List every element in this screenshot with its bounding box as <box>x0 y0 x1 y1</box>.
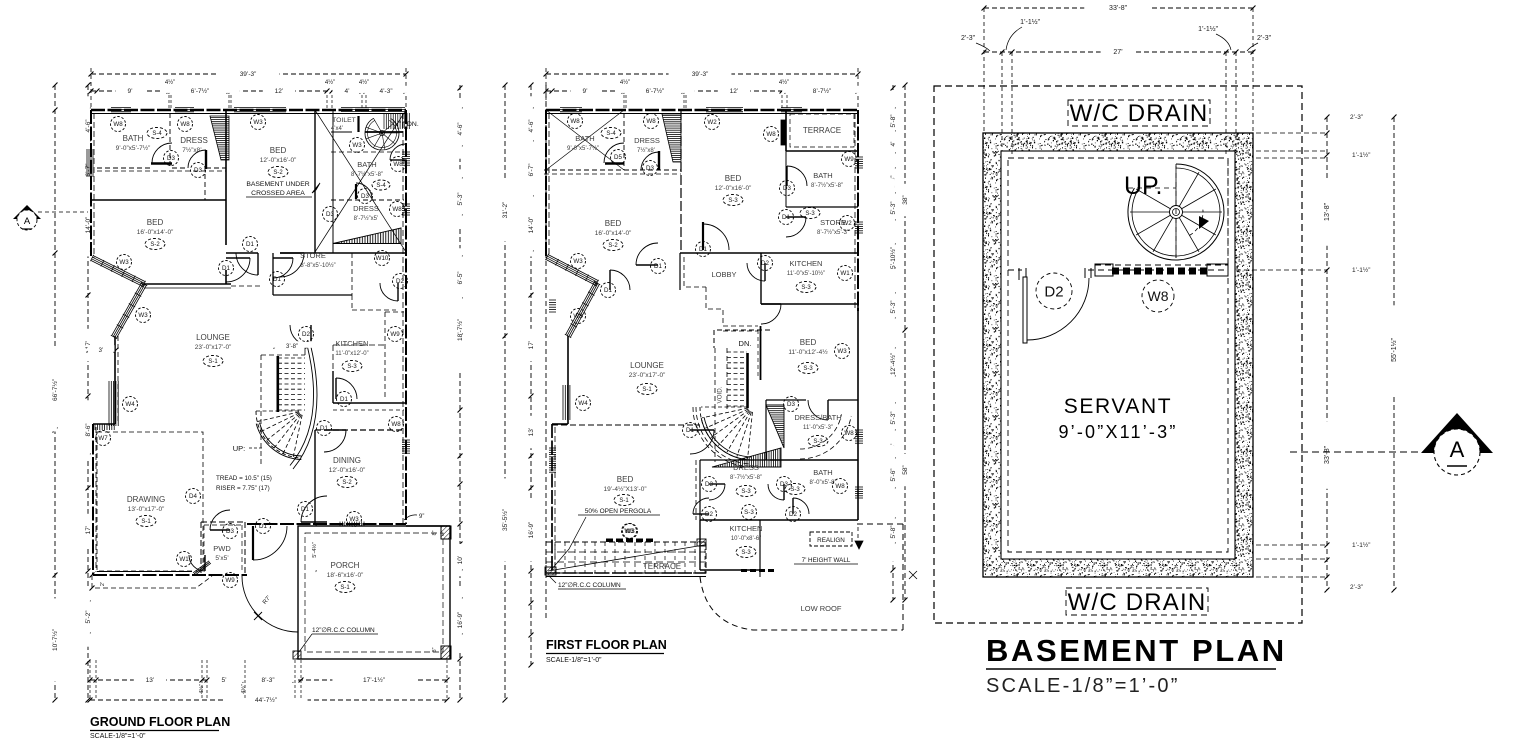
svg-text:10’-7½”: 10’-7½” <box>51 629 59 651</box>
svg-text:D3: D3 <box>167 155 175 162</box>
svg-text:DINING: DINING <box>333 456 361 465</box>
svg-text:D3: D3 <box>783 185 791 192</box>
svg-text:S-2: S-2 <box>273 170 283 176</box>
svg-text:55’-1½”: 55’-1½” <box>1390 337 1398 361</box>
svg-text:35’-5½”: 35’-5½” <box>501 509 509 531</box>
svg-text:W8: W8 <box>844 430 854 437</box>
svg-text:8’-0”x5’-8”: 8’-0”x5’-8” <box>809 480 836 486</box>
svg-text:1’-1½”: 1’-1½” <box>1352 541 1370 549</box>
svg-text:13’-0”x17’-0”: 13’-0”x17’-0” <box>128 506 165 513</box>
svg-text:5’-4½”: 5’-4½” <box>311 542 318 558</box>
svg-text:D2: D2 <box>396 278 404 285</box>
svg-text:LOBBY: LOBBY <box>711 270 736 279</box>
svg-text:11’-0”x5’-3”: 11’-0”x5’-3” <box>803 425 833 431</box>
svg-text:8’-7½”x5’-8”: 8’-7½”x5’-8” <box>351 171 383 178</box>
svg-text:S-4: S-4 <box>606 131 616 137</box>
svg-text:S-1: S-1 <box>340 585 350 591</box>
svg-text:W3: W3 <box>253 119 263 126</box>
svg-text:W3: W3 <box>624 528 634 535</box>
svg-text:W4: W4 <box>125 401 135 408</box>
svg-text:BED: BED <box>800 338 817 347</box>
svg-text:D1: D1 <box>222 265 230 272</box>
svg-text:38”: 38” <box>902 195 909 204</box>
svg-text:11’-0”x12’-0”: 11’-0”x12’-0” <box>335 351 368 357</box>
svg-text:BED: BED <box>147 218 164 227</box>
svg-text:14’-0”: 14’-0” <box>528 217 535 234</box>
svg-text:66’-7½”: 66’-7½” <box>51 379 59 401</box>
svg-text:12”∅R.C.C COLUMN: 12”∅R.C.C COLUMN <box>312 627 375 634</box>
svg-text:7’ HEIGHT WALL: 7’ HEIGHT WALL <box>802 557 851 564</box>
svg-text:BED: BED <box>270 146 287 155</box>
svg-text:PORCH: PORCH <box>331 561 360 570</box>
svg-text:9’: 9’ <box>127 88 133 95</box>
svg-text:S-1: S-1 <box>642 387 652 393</box>
svg-text:13’: 13’ <box>528 427 535 436</box>
svg-text:W3: W3 <box>573 258 583 265</box>
svg-text:S-3: S-3 <box>805 211 815 217</box>
svg-text:DRESS: DRESS <box>733 463 759 472</box>
svg-text:5’-8”: 5’-8” <box>890 114 897 127</box>
svg-text:4½”: 4½” <box>240 684 247 694</box>
svg-text:SERVANT: SERVANT <box>1064 395 1172 418</box>
svg-text:39’-3”: 39’-3” <box>692 71 709 78</box>
svg-text:12”∅R.C.C COLUMN: 12”∅R.C.C COLUMN <box>558 582 621 589</box>
svg-text:5’-8”: 5’-8” <box>890 525 897 538</box>
svg-text:23’-0”x17’-0”: 23’-0”x17’-0” <box>195 344 232 351</box>
svg-text:DRESS/BATH: DRESS/BATH <box>794 413 841 422</box>
svg-text:D1: D1 <box>273 276 281 283</box>
svg-text:UP:: UP: <box>233 444 246 453</box>
svg-text:S-3: S-3 <box>813 439 823 445</box>
svg-text:D1: D1 <box>340 396 348 403</box>
svg-text:9’-0”x5’-7½”: 9’-0”x5’-7½” <box>567 145 599 152</box>
svg-text:TOILET: TOILET <box>332 117 356 124</box>
svg-text:16’-9”: 16’-9” <box>457 612 464 629</box>
svg-text:W8: W8 <box>835 483 845 490</box>
svg-text:7½”x8’: 7½”x8’ <box>182 146 202 154</box>
svg-text:31’-2”: 31’-2” <box>502 202 509 219</box>
svg-text:10’-0”x8’-6”: 10’-0”x8’-6” <box>731 536 761 542</box>
svg-text:4’-6”: 4’-6” <box>528 119 535 132</box>
svg-text:2’-3”: 2’-3” <box>1257 35 1272 42</box>
svg-text:8’-8”x5’-10½”: 8’-8”x5’-10½” <box>300 262 335 269</box>
svg-text:W3: W3 <box>349 516 359 523</box>
svg-text:BATH: BATH <box>813 171 832 180</box>
svg-text:1’-1½”: 1’-1½” <box>1198 25 1219 33</box>
svg-text:8’-7½”: 8’-7½” <box>813 87 831 95</box>
svg-text:W10: W10 <box>376 255 389 262</box>
svg-text:S-3: S-3 <box>803 366 813 372</box>
svg-text:4’-3”: 4’-3” <box>379 88 392 95</box>
svg-text:17’: 17’ <box>85 525 92 534</box>
svg-text:LOUNGE: LOUNGE <box>630 361 664 370</box>
svg-text:W3: W3 <box>573 313 583 320</box>
svg-text:W8: W8 <box>766 131 776 138</box>
svg-text:REALIGN: REALIGN <box>817 537 845 544</box>
svg-text:18’-7½”: 18’-7½” <box>456 319 464 341</box>
svg-text:DRESS: DRESS <box>180 136 208 145</box>
svg-text:S-3: S-3 <box>741 489 751 495</box>
svg-text:W/C DRAIN: W/C DRAIN <box>1068 589 1207 616</box>
svg-text:BATH: BATH <box>123 134 144 143</box>
svg-text:S-3: S-3 <box>744 509 754 516</box>
svg-text:STORE: STORE <box>300 251 326 260</box>
svg-text:DRAWING: DRAWING <box>127 495 165 504</box>
svg-text:W3: W3 <box>138 312 148 319</box>
svg-text:S-2: S-2 <box>150 242 160 248</box>
svg-text:D2: D2 <box>1044 283 1063 300</box>
svg-text:W9: W9 <box>844 156 854 163</box>
svg-text:W8: W8 <box>393 161 403 168</box>
svg-text:W2: W2 <box>707 119 717 126</box>
svg-text:TERRACE: TERRACE <box>803 126 841 135</box>
svg-text:12’-4½”: 12’-4½” <box>889 353 897 375</box>
svg-text:33’-8”: 33’-8” <box>1109 5 1128 12</box>
svg-text:D5: D5 <box>614 154 622 161</box>
svg-text:6’-7½”: 6’-7½” <box>646 87 664 95</box>
svg-text:BATH: BATH <box>813 468 832 477</box>
svg-text:6’-5”: 6’-5” <box>457 271 464 284</box>
svg-text:12’-0”x16’-0”: 12’-0”x16’-0” <box>715 185 752 192</box>
svg-text:DN.: DN. <box>739 339 752 348</box>
svg-text:D3: D3 <box>226 528 234 535</box>
svg-text:2’-3”: 2’-3” <box>1350 584 1363 591</box>
svg-text:5’-2”: 5’-2” <box>85 610 92 623</box>
svg-text:RISER = 7.75” (17): RISER = 7.75” (17) <box>216 485 270 492</box>
svg-text:39’-3”: 39’-3” <box>240 71 257 78</box>
svg-text:D1: D1 <box>686 427 694 434</box>
svg-text:S-3: S-3 <box>801 285 811 291</box>
svg-text:1’-1½”: 1’-1½” <box>1352 151 1370 159</box>
svg-text:5’-3”: 5’-3” <box>890 300 897 313</box>
svg-text:W9: W9 <box>390 331 400 338</box>
svg-text:S-4: S-4 <box>152 131 162 137</box>
svg-text:S-3: S-3 <box>728 198 738 204</box>
svg-text:2’-3”: 2’-3” <box>961 35 976 42</box>
svg-text:BED: BED <box>725 174 742 183</box>
svg-text:9’: 9’ <box>582 88 588 95</box>
svg-text:LOUNGE: LOUNGE <box>196 333 230 342</box>
svg-text:4½”: 4½” <box>198 684 205 694</box>
svg-text:11’-0”x12’-4½: 11’-0”x12’-4½ <box>788 348 828 356</box>
svg-text:W/C DRAIN: W/C DRAIN <box>1070 100 1209 127</box>
svg-text:W4: W4 <box>578 400 588 407</box>
svg-text:R7’: R7’ <box>262 595 272 606</box>
svg-text:TREAD = 10.5” (15): TREAD = 10.5” (15) <box>216 475 272 482</box>
svg-text:SCALE-1/8”=1’-0”: SCALE-1/8”=1’-0” <box>546 657 602 664</box>
svg-text:A: A <box>1450 437 1465 462</box>
svg-text:S-2: S-2 <box>608 243 618 249</box>
svg-text:58”: 58” <box>902 465 909 474</box>
svg-text:D2: D2 <box>789 511 797 518</box>
svg-text:2’-3”: 2’-3” <box>1350 114 1363 121</box>
svg-text:D2: D2 <box>761 260 769 267</box>
svg-text:W3: W3 <box>837 348 847 355</box>
svg-text:D1: D1 <box>246 241 254 248</box>
svg-text:4½”: 4½” <box>325 79 335 86</box>
svg-text:8’-7½”x5’: 8’-7½”x5’ <box>354 215 379 222</box>
svg-text:VOID.: VOID. <box>717 386 724 403</box>
svg-text:W8: W8 <box>570 118 580 125</box>
svg-text:KITCHEN: KITCHEN <box>790 259 823 268</box>
svg-text:W8: W8 <box>392 206 402 213</box>
svg-text:17’-1½”: 17’-1½” <box>363 676 385 684</box>
svg-text:D1: D1 <box>259 523 267 530</box>
svg-text:18’-6”x16’-0”: 18’-6”x16’-0” <box>327 572 364 579</box>
svg-text:BATH: BATH <box>357 160 376 169</box>
svg-text:GROUND FLOOR PLAN: GROUND FLOOR PLAN <box>90 715 230 729</box>
svg-text:8”: 8” <box>432 647 438 652</box>
svg-text:11’-0”x5’-10½”: 11’-0”x5’-10½” <box>787 270 825 277</box>
svg-text:10’: 10’ <box>457 555 464 564</box>
svg-text:5’-3”: 5’-3” <box>890 411 897 424</box>
svg-text:5’x5’: 5’x5’ <box>215 555 229 562</box>
svg-text:D1: D1 <box>604 287 612 294</box>
svg-text:19’-4½”X13’-0”: 19’-4½”X13’-0” <box>604 485 647 493</box>
svg-text:44’-7½”: 44’-7½” <box>255 696 277 704</box>
svg-text:8’-3”: 8’-3” <box>261 677 274 684</box>
svg-text:W8: W8 <box>646 118 656 125</box>
svg-text:1’-1½”: 1’-1½” <box>1020 18 1041 26</box>
svg-text:BASEMENT PLAN: BASEMENT PLAN <box>986 633 1287 668</box>
svg-text:12’-0”x16’-0”: 12’-0”x16’-0” <box>329 467 366 474</box>
svg-text:D1: D1 <box>782 214 790 221</box>
svg-text:W1: W1 <box>179 556 189 563</box>
svg-text:D3: D3 <box>361 193 369 200</box>
svg-text:A: A <box>24 216 31 227</box>
svg-text:D3: D3 <box>705 481 713 488</box>
svg-text:KITCHEN: KITCHEN <box>730 524 763 533</box>
svg-text:S-2: S-2 <box>342 480 352 486</box>
svg-text:DRESS: DRESS <box>634 136 660 145</box>
svg-text:DRESS: DRESS <box>353 204 379 213</box>
svg-text:W9: W9 <box>225 577 235 584</box>
svg-text:8’-7½”x5’-8”: 8’-7½”x5’-8” <box>730 474 762 481</box>
svg-text:D1: D1 <box>301 506 309 513</box>
svg-text:5’-3”: 5’-3” <box>890 201 897 214</box>
svg-text:KITCHEN: KITCHEN <box>336 339 369 348</box>
svg-text:D3: D3 <box>780 481 788 488</box>
svg-text:W1: W1 <box>840 270 850 277</box>
svg-text:D3: D3 <box>194 167 202 174</box>
svg-text:W7: W7 <box>98 435 108 442</box>
svg-text:3’-8”: 3’-8” <box>286 344 298 350</box>
svg-text:4½”: 4½” <box>620 79 630 86</box>
svg-text:BED: BED <box>617 475 634 484</box>
svg-text:W8: W8 <box>113 121 123 128</box>
svg-text:4½”: 4½” <box>165 79 175 86</box>
svg-text:8’-6”: 8’-6” <box>85 423 92 436</box>
svg-text:DN.: DN. <box>407 121 419 128</box>
svg-text:W3: W3 <box>352 142 362 149</box>
svg-text:5’: 5’ <box>221 677 227 684</box>
svg-text:2’: 2’ <box>100 582 106 586</box>
svg-text:17’: 17’ <box>528 340 535 349</box>
svg-text:6’-7½”: 6’-7½” <box>191 87 209 95</box>
svg-text:5’-3”: 5’-3” <box>457 192 464 205</box>
svg-text:UP.: UP. <box>1124 172 1162 200</box>
svg-text:4½”: 4½” <box>779 79 789 86</box>
svg-text:12’: 12’ <box>275 88 284 95</box>
svg-text:27’: 27’ <box>1113 49 1123 56</box>
svg-text:BED: BED <box>605 219 622 228</box>
svg-text:D2: D2 <box>705 511 713 518</box>
svg-text:LOW ROOF: LOW ROOF <box>801 604 842 613</box>
svg-text:9’-0”x5’-7½”: 9’-0”x5’-7½” <box>116 144 151 152</box>
svg-text:W3: W3 <box>119 259 129 266</box>
svg-text:SCALE-1/8”=1’-0”: SCALE-1/8”=1’-0” <box>90 733 146 740</box>
svg-text:6’-7”: 6’-7” <box>528 163 535 176</box>
svg-text:D1: D1 <box>699 246 707 253</box>
svg-text:9’-0”X11’-3”: 9’-0”X11’-3” <box>1058 422 1177 442</box>
svg-text:1’-1½”: 1’-1½” <box>1352 266 1370 274</box>
svg-text:TERRACE: TERRACE <box>643 562 681 571</box>
svg-text:D2: D2 <box>302 331 310 338</box>
svg-text:D4: D4 <box>189 493 197 500</box>
svg-text:8”: 8” <box>432 530 438 535</box>
svg-text:16’-9”: 16’-9” <box>528 522 535 539</box>
svg-text:W8: W8 <box>1148 288 1169 304</box>
svg-text:D3: D3 <box>646 165 654 172</box>
svg-text:BASEMENT UNDER: BASEMENT UNDER <box>246 181 309 188</box>
svg-text:4’x4’: 4’x4’ <box>331 126 343 132</box>
svg-text:S-3: S-3 <box>741 550 751 556</box>
svg-text:3’: 3’ <box>99 348 104 354</box>
svg-text:D3: D3 <box>787 401 795 408</box>
svg-text:BATH: BATH <box>575 134 594 143</box>
svg-text:12’-0”x16’-0”: 12’-0”x16’-0” <box>260 157 297 164</box>
svg-text:FIRST FLOOR PLAN: FIRST FLOOR PLAN <box>546 638 667 652</box>
svg-text:SCALE-1/8”=1’-0”: SCALE-1/8”=1’-0” <box>986 675 1180 697</box>
svg-text:7½”x8’: 7½”x8’ <box>637 147 655 154</box>
svg-text:33’-8”: 33’-8” <box>1324 445 1331 464</box>
svg-text:16’-0”x14’-0”: 16’-0”x14’-0” <box>137 229 174 236</box>
svg-text:S-4: S-4 <box>376 183 386 189</box>
svg-text:5’-6”: 5’-6” <box>890 468 897 481</box>
svg-text:S-1: S-1 <box>141 519 151 525</box>
svg-text:D1: D1 <box>320 425 328 432</box>
svg-text:D1: D1 <box>654 263 662 270</box>
svg-text:CROSSED AREA: CROSSED AREA <box>251 190 305 197</box>
svg-text:4’: 4’ <box>890 141 897 147</box>
svg-text:23’-0”x17’-0”: 23’-0”x17’-0” <box>629 372 666 379</box>
svg-text:13’-8”: 13’-8” <box>1324 202 1331 221</box>
svg-text:9”: 9” <box>419 514 424 520</box>
svg-text:4’-6”: 4’-6” <box>457 122 464 135</box>
svg-text:4½”: 4½” <box>359 79 369 86</box>
svg-text:S-3: S-3 <box>790 487 800 493</box>
svg-text:50% OPEN PERGOLA: 50% OPEN PERGOLA <box>585 508 652 515</box>
svg-text:16’-0”x14’-0”: 16’-0”x14’-0” <box>595 230 632 237</box>
svg-text:8’-7½”x5’-8”: 8’-7½”x5’-8” <box>811 182 843 189</box>
svg-text:D3: D3 <box>326 211 334 218</box>
svg-text:W2: W2 <box>842 220 852 227</box>
svg-text:W8: W8 <box>391 421 401 428</box>
svg-text:13’: 13’ <box>146 677 155 684</box>
svg-text:W8: W8 <box>180 121 190 128</box>
svg-text:PWD: PWD <box>213 544 231 553</box>
svg-text:S-1: S-1 <box>619 498 629 504</box>
svg-text:S-1: S-1 <box>208 359 218 365</box>
svg-text:5’-10½”: 5’-10½” <box>889 247 897 269</box>
svg-text:12’: 12’ <box>730 88 739 95</box>
svg-text:S-3: S-3 <box>347 364 357 370</box>
svg-text:4’: 4’ <box>344 88 350 95</box>
